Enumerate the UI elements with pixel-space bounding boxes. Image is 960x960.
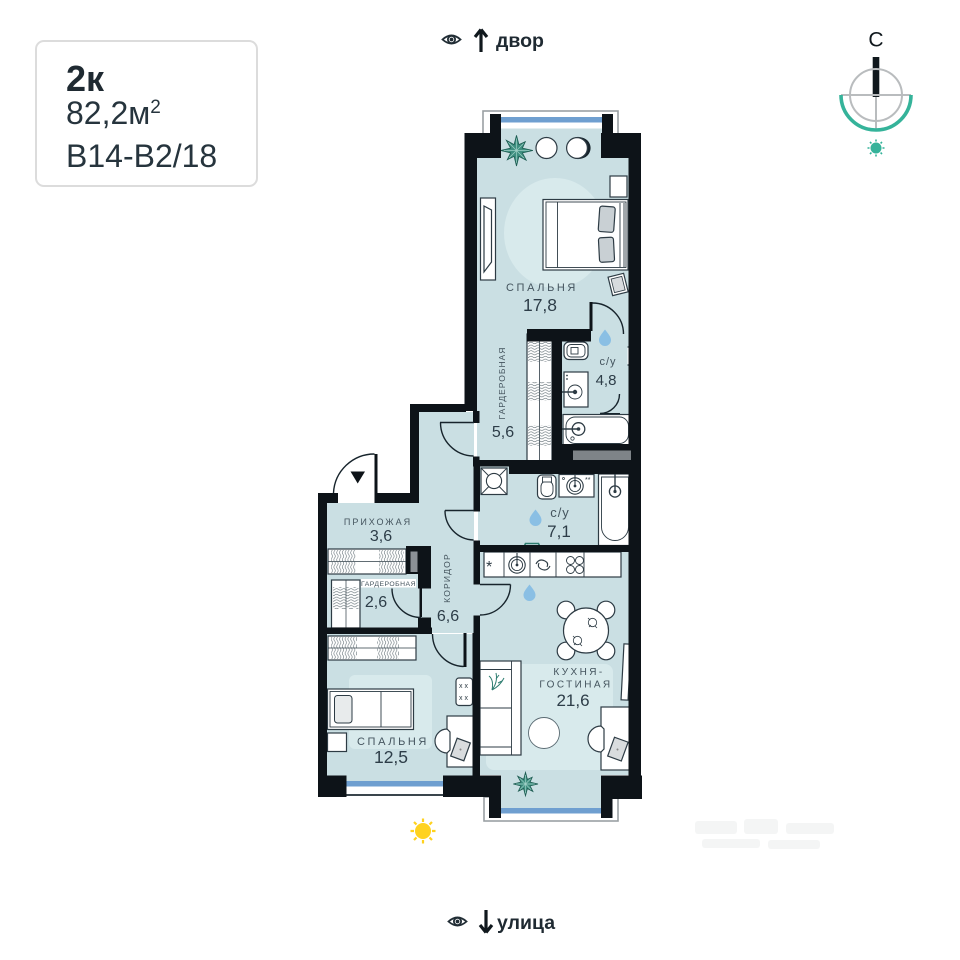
svg-text:СПАЛЬНЯ: СПАЛЬНЯ: [506, 282, 578, 294]
svg-text:с/у: с/у: [550, 505, 570, 520]
svg-text:4,8: 4,8: [596, 372, 617, 389]
svg-text:ГАРДЕРОБНАЯ: ГАРДЕРОБНАЯ: [497, 347, 507, 420]
svg-text:6,6: 6,6: [437, 608, 459, 625]
svg-text:ГАРДЕРОБНАЯ: ГАРДЕРОБНАЯ: [361, 581, 416, 588]
svg-text:улица: улица: [497, 912, 555, 934]
svg-text:5,6: 5,6: [492, 424, 514, 441]
svg-text:x x: x x: [459, 695, 468, 702]
svg-text:с/у: с/у: [599, 356, 616, 368]
svg-text:ПРИХОЖАЯ: ПРИХОЖАЯ: [344, 517, 412, 527]
svg-text:3,6: 3,6: [370, 528, 392, 545]
svg-text:КОРИДОР: КОРИДОР: [442, 553, 452, 603]
svg-text:2,6: 2,6: [365, 594, 387, 611]
svg-text:82,2м2: 82,2м2: [66, 95, 161, 131]
svg-text:7,1: 7,1: [547, 522, 571, 541]
svg-text:двор: двор: [496, 30, 544, 52]
svg-text:21,6: 21,6: [556, 691, 589, 710]
svg-text:С: С: [868, 29, 883, 52]
svg-text:2к: 2к: [66, 58, 105, 99]
svg-text:17,8: 17,8: [523, 295, 557, 315]
svg-text:ГОСТИНАЯ: ГОСТИНАЯ: [539, 680, 612, 691]
svg-text:*: *: [486, 559, 492, 576]
svg-text:В14-В2/18: В14-В2/18: [66, 138, 217, 174]
svg-text:КУХНЯ-: КУХНЯ-: [553, 667, 604, 678]
svg-text:**: **: [585, 477, 591, 484]
svg-text:12,5: 12,5: [374, 747, 408, 767]
svg-text:x x: x x: [459, 683, 468, 690]
